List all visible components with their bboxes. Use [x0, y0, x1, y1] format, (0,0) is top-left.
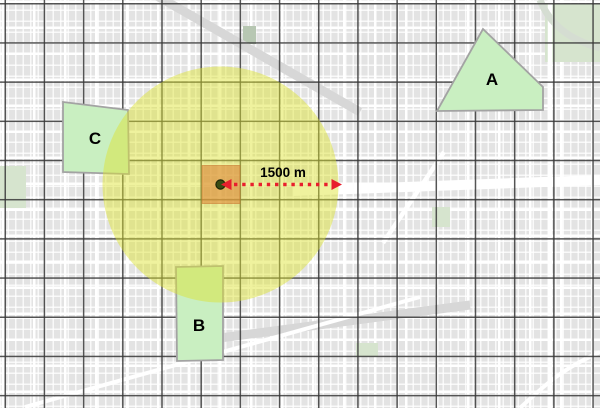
- zone-b-label: B: [193, 316, 205, 335]
- zone-a-label: A: [486, 70, 498, 89]
- buffer-analysis-map: 1500 m A B C: [0, 0, 600, 408]
- analysis-overlay: 1500 m A B C: [0, 0, 600, 408]
- zone-c-label: C: [89, 129, 101, 148]
- distance-label: 1500 m: [260, 165, 306, 180]
